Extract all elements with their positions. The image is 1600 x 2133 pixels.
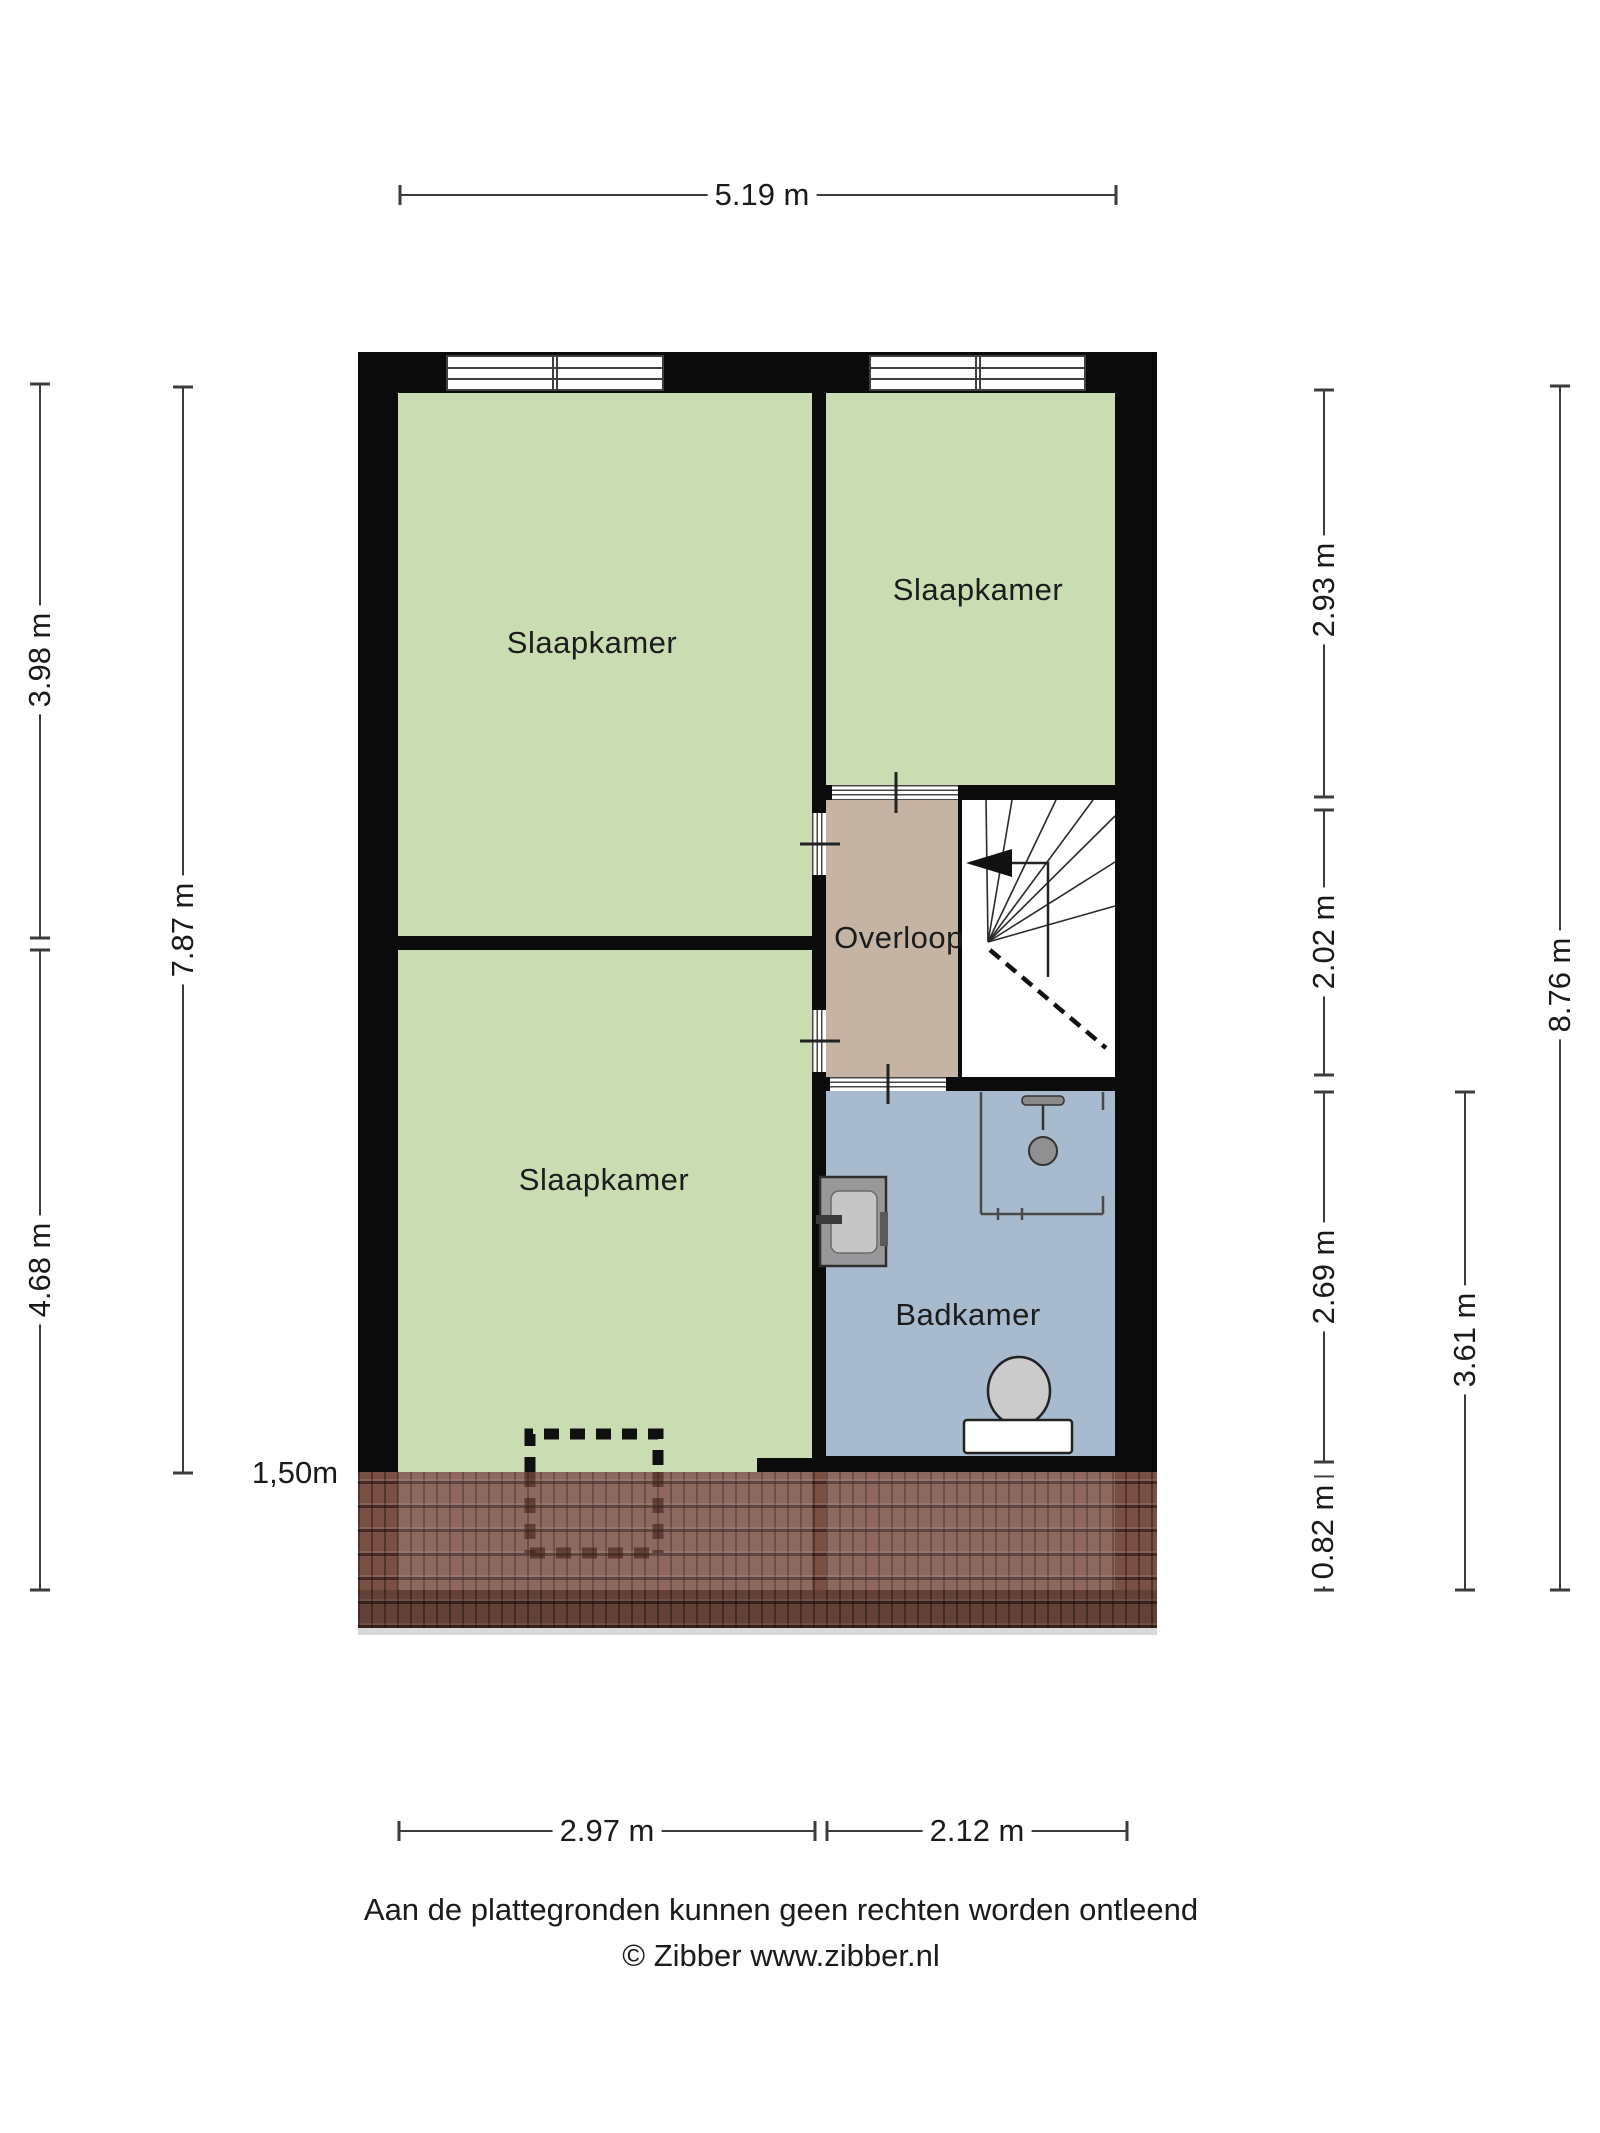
door-opening-icon (832, 785, 958, 800)
dim-right-outer-total: 8.76 m (1541, 931, 1579, 1040)
dim-right-landing: 2.02 m (1305, 888, 1343, 997)
room-label-bathroom: Badkamer (895, 1297, 1040, 1333)
dim-left-lower: 4.68 m (21, 1216, 59, 1325)
room-label-bedroom-bottom-left: Slaapkamer (519, 1162, 689, 1198)
dim-right-bathroom: 2.69 m (1305, 1223, 1343, 1332)
door-opening-icon (812, 1010, 826, 1072)
room-label-landing: Overloop (834, 920, 964, 956)
dim-left-inner-total: 7.87 m (164, 876, 202, 985)
room-label-bedroom-top-left: Slaapkamer (507, 625, 677, 661)
dim-left-upper: 3.98 m (21, 606, 59, 715)
window-icon (446, 355, 664, 391)
roof-lower-band (358, 1590, 1157, 1628)
disclaimer-text: Aan de plattegronden kunnen geen rechten… (364, 1892, 1198, 1928)
room-bedroom-top-left (398, 393, 812, 936)
door-opening-icon (830, 1077, 946, 1091)
roof-knee-zone-left (398, 1472, 812, 1590)
room-bedroom-bottom-left-floor (398, 1458, 757, 1472)
dim-right-inner-total: 3.61 m (1446, 1286, 1484, 1395)
dim-knee-wall-height: 1,50m (245, 1454, 345, 1492)
roof-knee-zone-right (826, 1472, 1115, 1590)
door-opening-icon (812, 813, 826, 875)
dim-right-bedroom: 2.93 m (1305, 536, 1343, 645)
floorplan-page: Slaapkamer Slaapkamer Slaapkamer Overloo… (0, 0, 1600, 2133)
roof-shadow-edge (358, 1628, 1157, 1635)
room-bedroom-bottom-left (398, 950, 812, 1458)
copyright-text: © Zibber www.zibber.nl (622, 1938, 939, 1974)
dim-bottom-right-width: 2.12 m (923, 1812, 1032, 1850)
dim-bottom-left-width: 2.97 m (553, 1812, 662, 1850)
window-icon (869, 355, 1086, 391)
dim-top-width: 5.19 m (708, 176, 817, 214)
dim-right-knee: 0.82 m (1304, 1478, 1342, 1587)
room-label-bedroom-top-right: Slaapkamer (893, 572, 1063, 608)
room-bathroom (826, 1091, 1115, 1456)
staircase-area (962, 800, 1115, 1077)
